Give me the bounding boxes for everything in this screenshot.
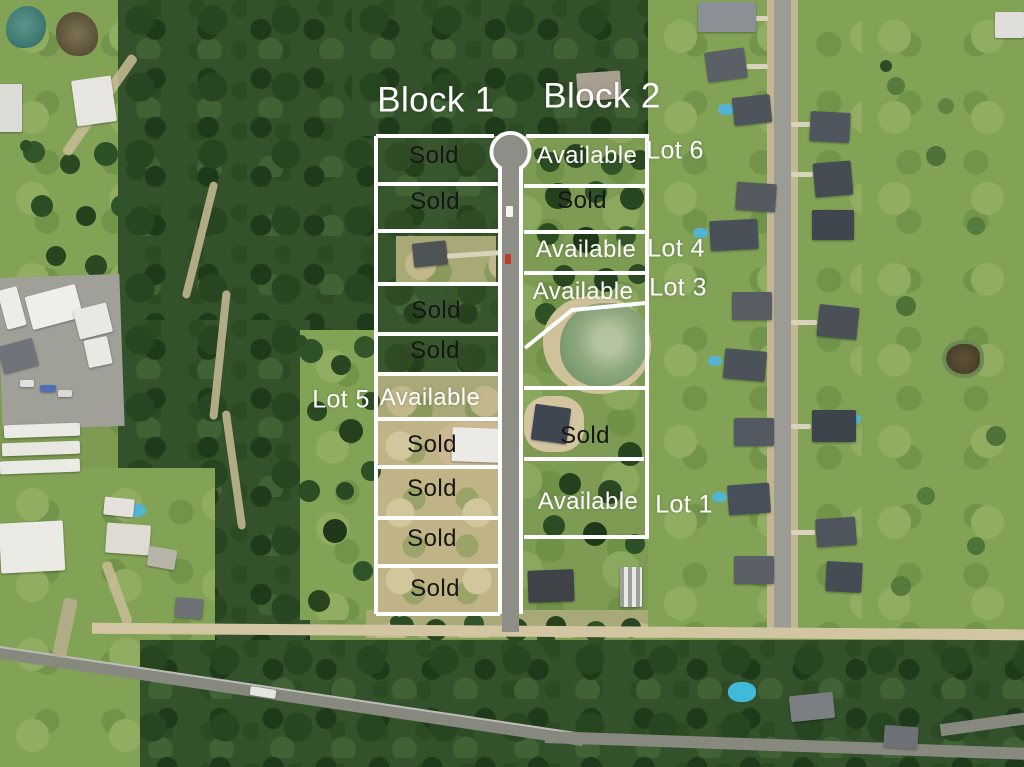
house (704, 47, 748, 82)
lot-status-label: Sold (407, 477, 457, 501)
pond-brown (56, 12, 98, 56)
house (105, 523, 151, 556)
house (732, 292, 772, 320)
truck (20, 380, 34, 387)
house (883, 725, 918, 749)
storage-row (2, 441, 80, 457)
pool (728, 682, 756, 702)
lot-status-label: Sold (410, 339, 460, 363)
pasture-right (862, 0, 1024, 640)
lot-status-label: Available (380, 386, 481, 410)
storage-row (0, 459, 80, 475)
tree-cluster-top-left (20, 140, 32, 152)
lot-number-label: Lot 3 (649, 276, 707, 301)
truck (40, 385, 56, 392)
lot-number-label: Lot 5 (312, 388, 370, 413)
house (816, 304, 859, 340)
lot-status-label: Available (533, 280, 634, 304)
tree-cluster-lot5 (295, 335, 307, 347)
block-1-label: Block 1 (377, 83, 495, 118)
house (812, 410, 856, 442)
lot-number-label: Lot 1 (655, 493, 713, 518)
neighborhood-road (774, 0, 791, 632)
driveway (791, 530, 815, 535)
house (732, 94, 773, 126)
car-white (506, 206, 513, 217)
lot-status-label: Sold (410, 190, 460, 214)
pasture-pond (946, 344, 980, 374)
field-bottom-left (0, 618, 140, 767)
field-lot5 (300, 330, 380, 620)
lot-number-label: Lot 4 (647, 237, 705, 262)
house (174, 597, 204, 619)
lot-status-label: Sold (409, 144, 459, 168)
house (813, 160, 854, 197)
aerial-photo: Block 1 Block 2 Sold Sold Sold Sold Avai… (0, 0, 1024, 767)
house (723, 348, 767, 382)
neighborhood (648, 0, 862, 632)
pool (708, 356, 722, 366)
house (727, 483, 771, 516)
lot-status-label: Sold (410, 577, 460, 601)
driveway (791, 320, 817, 325)
house (815, 517, 857, 548)
storage-row (4, 423, 80, 439)
barn (620, 567, 642, 607)
house (103, 496, 135, 517)
house (809, 111, 851, 143)
tree-cluster-pasture (880, 60, 892, 72)
driveway (791, 122, 811, 127)
large-white-building (0, 520, 65, 573)
farm-building (71, 75, 117, 126)
lot-status-label: Available (537, 144, 638, 168)
house-under-construction (451, 427, 504, 463)
house (734, 418, 774, 446)
farm-house (0, 84, 22, 132)
block-2-label: Block 2 (543, 79, 661, 114)
house (995, 12, 1024, 38)
lot-status-label: Sold (407, 433, 457, 457)
lot-status-label: Sold (560, 424, 610, 448)
lot-status-label: Sold (407, 527, 457, 551)
lot-number-label: Lot 6 (646, 139, 704, 164)
driveway (746, 64, 768, 69)
driveway (791, 172, 813, 177)
driveway (791, 424, 811, 429)
subdivision-road (502, 158, 519, 632)
house (698, 2, 756, 32)
lot-status-label: Sold (557, 189, 607, 213)
lot-status-label: Available (538, 490, 639, 514)
pond-blue (6, 6, 46, 48)
house (527, 569, 574, 603)
lot-status-label: Sold (411, 299, 461, 323)
house (734, 556, 774, 584)
truck (58, 390, 72, 397)
house (789, 692, 835, 722)
car-red (505, 254, 511, 264)
house (825, 561, 863, 593)
house (812, 210, 854, 240)
house-lot3-block1 (412, 240, 448, 267)
lot-status-label: Available (536, 238, 637, 262)
house (735, 182, 777, 213)
house (709, 219, 759, 251)
forest-left-upper (118, 0, 380, 332)
road-shoulder (791, 0, 798, 632)
pool (712, 492, 727, 502)
